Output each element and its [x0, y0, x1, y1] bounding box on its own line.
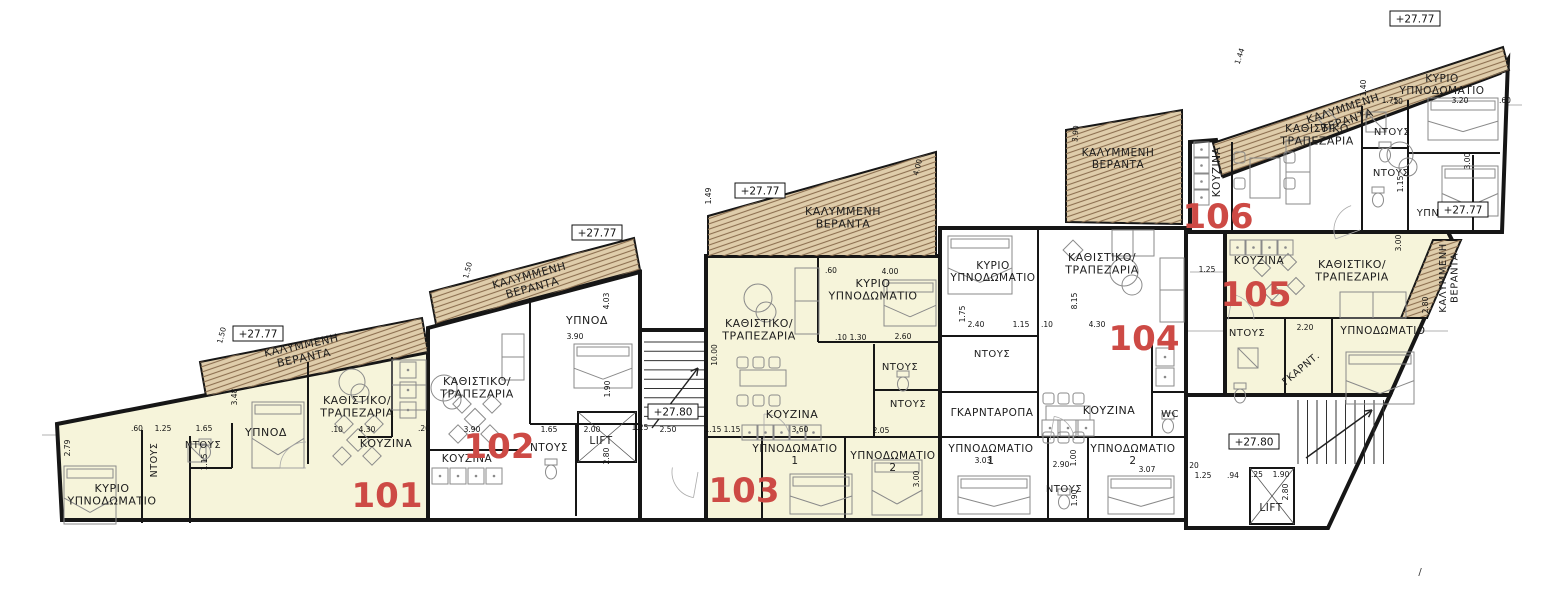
svg-text:ΥΠΝΟΔ: ΥΠΝΟΔ — [244, 426, 287, 439]
svg-text:4.00: 4.00 — [882, 267, 899, 276]
dimension-label: 3.00 — [1463, 152, 1472, 169]
dimension-label: 1.50 — [461, 261, 474, 280]
svg-text:+27.77: +27.77 — [239, 329, 278, 341]
svg-text:3.00: 3.00 — [912, 470, 921, 487]
svg-text:ΥΠΝΟΔΩΜΑΤΙΟ: ΥΠΝΟΔΩΜΑΤΙΟ — [1339, 325, 1425, 337]
svg-text:1.25: 1.25 — [1195, 471, 1212, 480]
svg-text:1.90: 1.90 — [603, 380, 612, 397]
dimension-label: 1.50 — [215, 326, 228, 345]
svg-text:+27.77: +27.77 — [1396, 14, 1435, 26]
svg-text:ΝΤΟΥΣ: ΝΤΟΥΣ — [882, 362, 918, 373]
svg-text:4.30: 4.30 — [1089, 320, 1106, 329]
svg-text:ΚΑΘΙΣΤΙΚΟ/ΤΡΑΠΕΖΑΡΙΑ: ΚΑΘΙΣΤΙΚΟ/ΤΡΑΠΕΖΑΡΙΑ — [721, 317, 796, 343]
svg-text:1.15: 1.15 — [200, 453, 209, 470]
dimension-label: 2.79 — [63, 439, 72, 456]
svg-text:ΓΚΑΡΝΤΑΡΟΠΑ: ΓΚΑΡΝΤΑΡΟΠΑ — [951, 407, 1034, 419]
unit-number-105: 105 — [1221, 275, 1292, 315]
kitchen-unit-knob — [764, 431, 767, 434]
room-label: ΚΟΥΖΙΝΑ — [1211, 146, 1223, 197]
room-label: ΚΑΘΙΣΤΙΚΟ/ΤΡΑΠΕΖΑΡΙΑ — [319, 394, 394, 420]
dimension-label: .25 — [1251, 470, 1263, 479]
svg-text:ΚΑΘΙΣΤΙΚΟ/ΤΡΑΠΕΖΑΡΙΑ: ΚΑΘΙΣΤΙΚΟ/ΤΡΑΠΕΖΑΡΙΑ — [319, 394, 394, 420]
room-label: ΥΠΝΟΔ — [244, 426, 287, 439]
svg-text:ΚΟΥΖΙΝΑ: ΚΟΥΖΙΝΑ — [1211, 146, 1223, 197]
veranda-2-hatch — [708, 152, 936, 256]
room-label: ΚΑΘΙΣΤΙΚΟ/ΤΡΑΠΕΖΑΡΙΑ — [439, 375, 514, 401]
unit-number-101: 101 — [352, 476, 423, 516]
room-label: ΚΑΛΥΜΜΕΝΗΒΕΡΑΝΤΑ — [805, 205, 881, 231]
room-label: LIFT — [1259, 502, 1282, 514]
svg-text:.10: .10 — [331, 425, 343, 434]
svg-text:ΝΤΟΥΣ: ΝΤΟΥΣ — [185, 440, 221, 451]
dimension-label: 1.00 — [1069, 449, 1078, 466]
svg-text:2.40: 2.40 — [968, 320, 985, 329]
kitchen-unit-knob — [780, 431, 783, 434]
svg-text:ΝΤΟΥΣ: ΝΤΟΥΣ — [1229, 328, 1265, 339]
svg-text:/: / — [1418, 567, 1422, 578]
svg-text:4.30: 4.30 — [359, 425, 376, 434]
dimension-label: 3.48 — [230, 388, 239, 405]
room-label: ΚΑΘΙΣΤΙΚΟ/ΤΡΑΠΕΖΑΡΙΑ — [721, 317, 796, 343]
unit-number-104: 104 — [1109, 319, 1180, 359]
level-marker: +27.77 — [239, 329, 278, 341]
svg-text:2.80: 2.80 — [1281, 483, 1290, 500]
dimension-label: 2.00 — [584, 425, 601, 434]
svg-text:105: 105 — [1221, 275, 1292, 315]
svg-text:2.80: 2.80 — [1421, 296, 1430, 313]
svg-text:1.90: 1.90 — [1273, 470, 1290, 479]
svg-text:ΚΑΘΙΣΤΙΚΟΤΡΑΠΕΖΑΡΙΑ: ΚΑΘΙΣΤΙΚΟΤΡΑΠΕΖΑΡΙΑ — [1279, 122, 1354, 148]
dimension-label: 20 — [1189, 461, 1199, 470]
svg-text:.10: .10 — [835, 333, 847, 342]
svg-text:20: 20 — [1189, 461, 1199, 470]
level-marker: +27.80 — [654, 407, 693, 419]
room-label: ΝΤΟΥΣ — [530, 442, 568, 454]
svg-text:2.50: 2.50 — [660, 425, 677, 434]
kitchen-unit-knob — [407, 389, 410, 392]
dimension-label: 1.25 — [632, 423, 649, 432]
svg-text:3.48: 3.48 — [230, 388, 239, 405]
svg-text:1.65: 1.65 — [196, 424, 213, 433]
dimension-label: 3.20 — [1452, 96, 1469, 105]
kitchen-unit-knob — [475, 475, 478, 478]
dimension-label: 4.30 — [359, 425, 376, 434]
svg-text:104: 104 — [1109, 319, 1180, 359]
dimension-label: 1.15 — [724, 425, 741, 434]
level-marker: +27.77 — [578, 228, 617, 240]
level-marker: +27.77 — [1396, 14, 1435, 26]
kitchen-unit-knob — [1236, 246, 1239, 249]
dimension-label: 1.25 — [1199, 265, 1216, 274]
svg-text:1.15: 1.15 — [724, 425, 741, 434]
unit-number-106: 106 — [1183, 197, 1254, 237]
level-marker: +27.80 — [1235, 437, 1274, 449]
svg-text:LIFT: LIFT — [1259, 502, 1282, 514]
room-label: ΝΤΟΥΣ — [1229, 328, 1265, 339]
svg-text:ΚΑΘΙΣΤΙΚΟ/ΤΡΑΠΕΖΑΡΙΑ: ΚΑΘΙΣΤΙΚΟ/ΤΡΑΠΕΖΑΡΙΑ — [1064, 251, 1139, 277]
svg-text:1.49: 1.49 — [704, 187, 713, 204]
svg-text:1.15: 1.15 — [1013, 320, 1030, 329]
room-label: ΝΤΟΥΣ — [974, 349, 1010, 360]
room-label: ΚΑΘΙΣΤΙΚΟ/ΤΡΑΠΕΖΑΡΙΑ — [1064, 251, 1139, 277]
room-label: ΝΤΟΥΣ — [1374, 127, 1410, 138]
kitchen-unit-knob — [1200, 164, 1203, 167]
room-label: ΥΠΝΟΔΩΜΑΤΙΟ — [1339, 325, 1425, 337]
dimension-label: 3.00 — [912, 470, 921, 487]
floorplan-svg: ΚΑΛΥΜΜΕΝΗΒΕΡΑΝΤΑΚΥΡΙΟΥΠΝΟΔΩΜΑΤΙΟΝΤΟΥΣΝΤΟ… — [0, 0, 1568, 594]
svg-text:ΚΟΥΖΙΝΑ: ΚΟΥΖΙΝΑ — [766, 408, 819, 421]
room-label: WC — [1161, 409, 1179, 420]
dimension-label: .60 — [1499, 96, 1511, 105]
room-label: ΚΟΥΖΙΝΑ — [766, 408, 819, 421]
kitchen-unit-knob — [1049, 427, 1052, 430]
dimension-label: .94 — [1227, 471, 1239, 480]
svg-text:10.00: 10.00 — [710, 344, 719, 366]
svg-text:2.80: 2.80 — [602, 447, 611, 464]
svg-text:8.15: 8.15 — [1070, 292, 1079, 309]
svg-text:+27.80: +27.80 — [1235, 437, 1274, 449]
kitchen-unit-knob — [439, 475, 442, 478]
dimension-label: 3.90 — [1070, 125, 1080, 143]
svg-text:ΚΟΥΖΙΝΑ: ΚΟΥΖΙΝΑ — [1234, 255, 1285, 267]
svg-text:ΝΤΟΥΣ: ΝΤΟΥΣ — [890, 399, 926, 410]
svg-text:ΚΟΥΖΙΝΑ: ΚΟΥΖΙΝΑ — [1083, 404, 1136, 417]
dimension-label: 4.30 — [1089, 320, 1106, 329]
level-marker: +27.77 — [741, 186, 780, 198]
unit-number-102: 102 — [464, 427, 535, 467]
dimension-label: 3.03 — [975, 456, 992, 465]
svg-text:ΝΤΟΥΣ: ΝΤΟΥΣ — [974, 349, 1010, 360]
svg-text:ΚΟΥΖΙΝΑ: ΚΟΥΖΙΝΑ — [360, 437, 413, 450]
dimension-label: 2.05 — [873, 426, 890, 435]
svg-text:ΝΤΟΥΣ: ΝΤΟΥΣ — [1374, 127, 1410, 138]
svg-text:2.79: 2.79 — [63, 439, 72, 456]
dimension-label: 10.00 — [710, 344, 719, 366]
svg-text:4.03: 4.03 — [602, 292, 611, 309]
dimension-label: 1.25 — [155, 424, 172, 433]
svg-text:+27.77: +27.77 — [741, 186, 780, 198]
svg-text:3.07: 3.07 — [1139, 465, 1156, 474]
svg-text:.94: .94 — [1227, 471, 1239, 480]
dimension-label: 1.75 — [958, 305, 967, 322]
svg-text:1.44: 1.44 — [1233, 47, 1247, 66]
svg-text:3.20: 3.20 — [1452, 96, 1469, 105]
kitchen-unit-knob — [1252, 246, 1255, 249]
svg-text:3.00: 3.00 — [1463, 152, 1472, 169]
svg-text:ΥΠΝΟΔ: ΥΠΝΟΔ — [565, 314, 608, 327]
kitchen-unit-knob — [1164, 376, 1167, 379]
svg-text:.20: .20 — [418, 424, 430, 433]
svg-text:ΝΤΟΥΣ: ΝΤΟΥΣ — [149, 443, 160, 478]
kitchen-unit-knob — [1085, 427, 1088, 430]
dimension-label: 3.60 — [792, 425, 809, 434]
room-label: ΝΤΟΥΣ — [882, 362, 918, 373]
kitchen-unit-knob — [1268, 246, 1271, 249]
svg-text:1.50: 1.50 — [215, 326, 228, 345]
room-label: ΓΚΑΡΝΤΑΡΟΠΑ — [951, 407, 1034, 419]
kitchen-unit-knob — [407, 409, 410, 412]
svg-text:1.30: 1.30 — [850, 333, 867, 342]
svg-text:2.60: 2.60 — [895, 332, 912, 341]
dimension-label: 1.25 — [1195, 471, 1212, 480]
svg-text:1.50: 1.50 — [461, 261, 474, 280]
svg-text:1.25: 1.25 — [632, 423, 649, 432]
svg-text:1.00: 1.00 — [1069, 449, 1078, 466]
floor-plan-canvas: ΚΑΛΥΜΜΕΝΗΒΕΡΑΝΤΑΚΥΡΙΟΥΠΝΟΔΩΜΑΤΙΟΝΤΟΥΣΝΤΟ… — [0, 0, 1568, 594]
room-label: ΚΑΘΙΣΤΙΚΟ/ΤΡΑΠΕΖΑΡΙΑ — [1314, 258, 1389, 284]
dimension-label: .60 — [825, 266, 837, 275]
room-label: ΥΠΝ — [1416, 208, 1440, 219]
svg-text:ΥΠΝ: ΥΠΝ — [1416, 208, 1440, 219]
dimension-label: 1.40 — [1359, 79, 1368, 96]
level-marker: +27.77 — [1444, 205, 1483, 217]
svg-text:+27.77: +27.77 — [578, 228, 617, 240]
svg-text:2.90: 2.90 — [1053, 460, 1070, 469]
svg-text:1.65: 1.65 — [541, 425, 558, 434]
dimension-label: .10 — [1041, 320, 1053, 329]
dimension-label: 4.00 — [882, 267, 899, 276]
room-label: ΝΤΟΥΣ — [185, 440, 221, 451]
dimension-label: .10 — [331, 425, 343, 434]
dimension-label: 2.50 — [660, 425, 677, 434]
svg-text:3.00: 3.00 — [1394, 234, 1403, 251]
svg-text:ΚΑΘΙΣΤΙΚΟ/ΤΡΑΠΕΖΑΡΙΑ: ΚΑΘΙΣΤΙΚΟ/ΤΡΑΠΕΖΑΡΙΑ — [1314, 258, 1389, 284]
dimension-label: .10 — [835, 333, 847, 342]
dimension-label: 1.44 — [1233, 47, 1247, 66]
dimension-label: 2.80 — [1421, 296, 1430, 313]
kitchen-unit-knob — [1200, 148, 1203, 151]
room-label: ΚΟΥΖΙΝΑ — [1234, 255, 1285, 267]
dimension-label: 1.65 — [196, 424, 213, 433]
room-label: ΚΑΛΥΜΜΕΝΗΒΕΡΑΝΤΑ — [1438, 243, 1461, 312]
room-label: ΥΠΝΟΔ — [565, 314, 608, 327]
dimension-label: 2.80 — [1281, 483, 1290, 500]
misc-mark: / — [1418, 567, 1422, 578]
kitchen-unit-knob — [1200, 180, 1203, 183]
dimension-label: 3.90 — [567, 332, 584, 341]
svg-text:.10: .10 — [1391, 97, 1403, 106]
svg-text:ΚΑΛΥΜΜΕΝΗΒΕΡΑΝΤΑ: ΚΑΛΥΜΜΕΝΗΒΕΡΑΝΤΑ — [805, 205, 881, 231]
svg-text:ΝΤΟΥΣ: ΝΤΟΥΣ — [530, 442, 568, 454]
kitchen-unit-knob — [1284, 246, 1287, 249]
svg-text:102: 102 — [464, 427, 535, 467]
dimension-label: 4.03 — [602, 292, 611, 309]
svg-text:.60: .60 — [825, 266, 837, 275]
svg-text:.60: .60 — [1499, 96, 1511, 105]
room-label: ΝΤΟΥΣ — [149, 443, 160, 478]
kitchen-unit-knob — [812, 431, 815, 434]
room-label: ΚΑΘΙΣΤΙΚΟΤΡΑΠΕΖΑΡΙΑ — [1279, 122, 1354, 148]
dimension-label: 2.40 — [968, 320, 985, 329]
svg-text:3.03: 3.03 — [975, 456, 992, 465]
svg-text:1.25: 1.25 — [155, 424, 172, 433]
dimension-label: 1.49 — [704, 187, 713, 204]
svg-text:103: 103 — [709, 471, 780, 511]
svg-text:1.75: 1.75 — [958, 305, 967, 322]
svg-text:WC: WC — [1161, 409, 1179, 420]
kitchen-unit-knob — [493, 475, 496, 478]
unit-number-103: 103 — [709, 471, 780, 511]
svg-text:1.25: 1.25 — [1199, 265, 1216, 274]
svg-text:.60: .60 — [131, 424, 143, 433]
svg-text:1.90: 1.90 — [1070, 489, 1079, 506]
kitchen-unit-knob — [457, 475, 460, 478]
dimension-label: 1.90 — [603, 380, 612, 397]
svg-text:1.40: 1.40 — [1359, 79, 1368, 96]
room-label: ΚΑΛΥΜΜΕΝΗΒΕΡΑΝΤΑ — [1082, 147, 1155, 171]
dimension-label: 1.15 — [200, 453, 209, 470]
svg-text:.25: .25 — [1251, 470, 1263, 479]
dimension-label: 3.07 — [1139, 465, 1156, 474]
dimension-label: 8.15 — [1070, 292, 1079, 309]
dimension-label: 1.90 — [1070, 489, 1079, 506]
dimension-label: .20 — [418, 424, 430, 433]
svg-text:2.00: 2.00 — [584, 425, 601, 434]
room-label: LIFT — [589, 435, 612, 447]
svg-text:101: 101 — [352, 476, 423, 516]
dimension-label: 1.15 — [705, 425, 722, 434]
svg-text:2.20: 2.20 — [1297, 323, 1314, 332]
svg-text:3.90: 3.90 — [1070, 125, 1080, 143]
kitchen-unit-knob — [748, 431, 751, 434]
svg-text:1.15: 1.15 — [705, 425, 722, 434]
dimension-label: 2.80 — [602, 447, 611, 464]
dimension-label: 2.20 — [1297, 323, 1314, 332]
dimension-label: 3.00 — [1394, 234, 1403, 251]
kitchen-unit-knob — [1067, 427, 1070, 430]
svg-text:1.15: 1.15 — [1396, 175, 1405, 192]
svg-text:+27.77: +27.77 — [1444, 205, 1483, 217]
svg-text:ΚΑΛΥΜΜΕΝΗΒΕΡΑΝΤΑ: ΚΑΛΥΜΜΕΝΗΒΕΡΑΝΤΑ — [1082, 147, 1155, 171]
room-label: ΚΟΥΖΙΝΑ — [360, 437, 413, 450]
unit-stairs-right-outline — [1186, 395, 1390, 528]
svg-text:ΚΑΘΙΣΤΙΚΟ/ΤΡΑΠΕΖΑΡΙΑ: ΚΑΘΙΣΤΙΚΟ/ΤΡΑΠΕΖΑΡΙΑ — [439, 375, 514, 401]
dimension-label: 1.65 — [541, 425, 558, 434]
svg-text:106: 106 — [1183, 197, 1254, 237]
svg-text:.10: .10 — [1041, 320, 1053, 329]
dimension-label: 1.90 — [1273, 470, 1290, 479]
svg-text:3.90: 3.90 — [567, 332, 584, 341]
svg-text:LIFT: LIFT — [589, 435, 612, 447]
dimension-label: .60 — [131, 424, 143, 433]
room-label: ΝΤΟΥΣ — [890, 399, 926, 410]
svg-text:+27.80: +27.80 — [654, 407, 693, 419]
svg-text:ΚΑΛΥΜΜΕΝΗΒΕΡΑΝΤΑ: ΚΑΛΥΜΜΕΝΗΒΕΡΑΝΤΑ — [1438, 243, 1461, 312]
dimension-label: 1.15 — [1396, 175, 1405, 192]
dimension-label: 1.15 — [1013, 320, 1030, 329]
room-label: ΚΟΥΖΙΝΑ — [1083, 404, 1136, 417]
dimension-label: .10 — [1391, 97, 1403, 106]
dimension-label: 1.30 — [850, 333, 867, 342]
dimension-label: 2.60 — [895, 332, 912, 341]
svg-text:2.05: 2.05 — [873, 426, 890, 435]
kitchen-unit-knob — [407, 369, 410, 372]
dimension-label: 2.90 — [1053, 460, 1070, 469]
svg-text:3.60: 3.60 — [792, 425, 809, 434]
